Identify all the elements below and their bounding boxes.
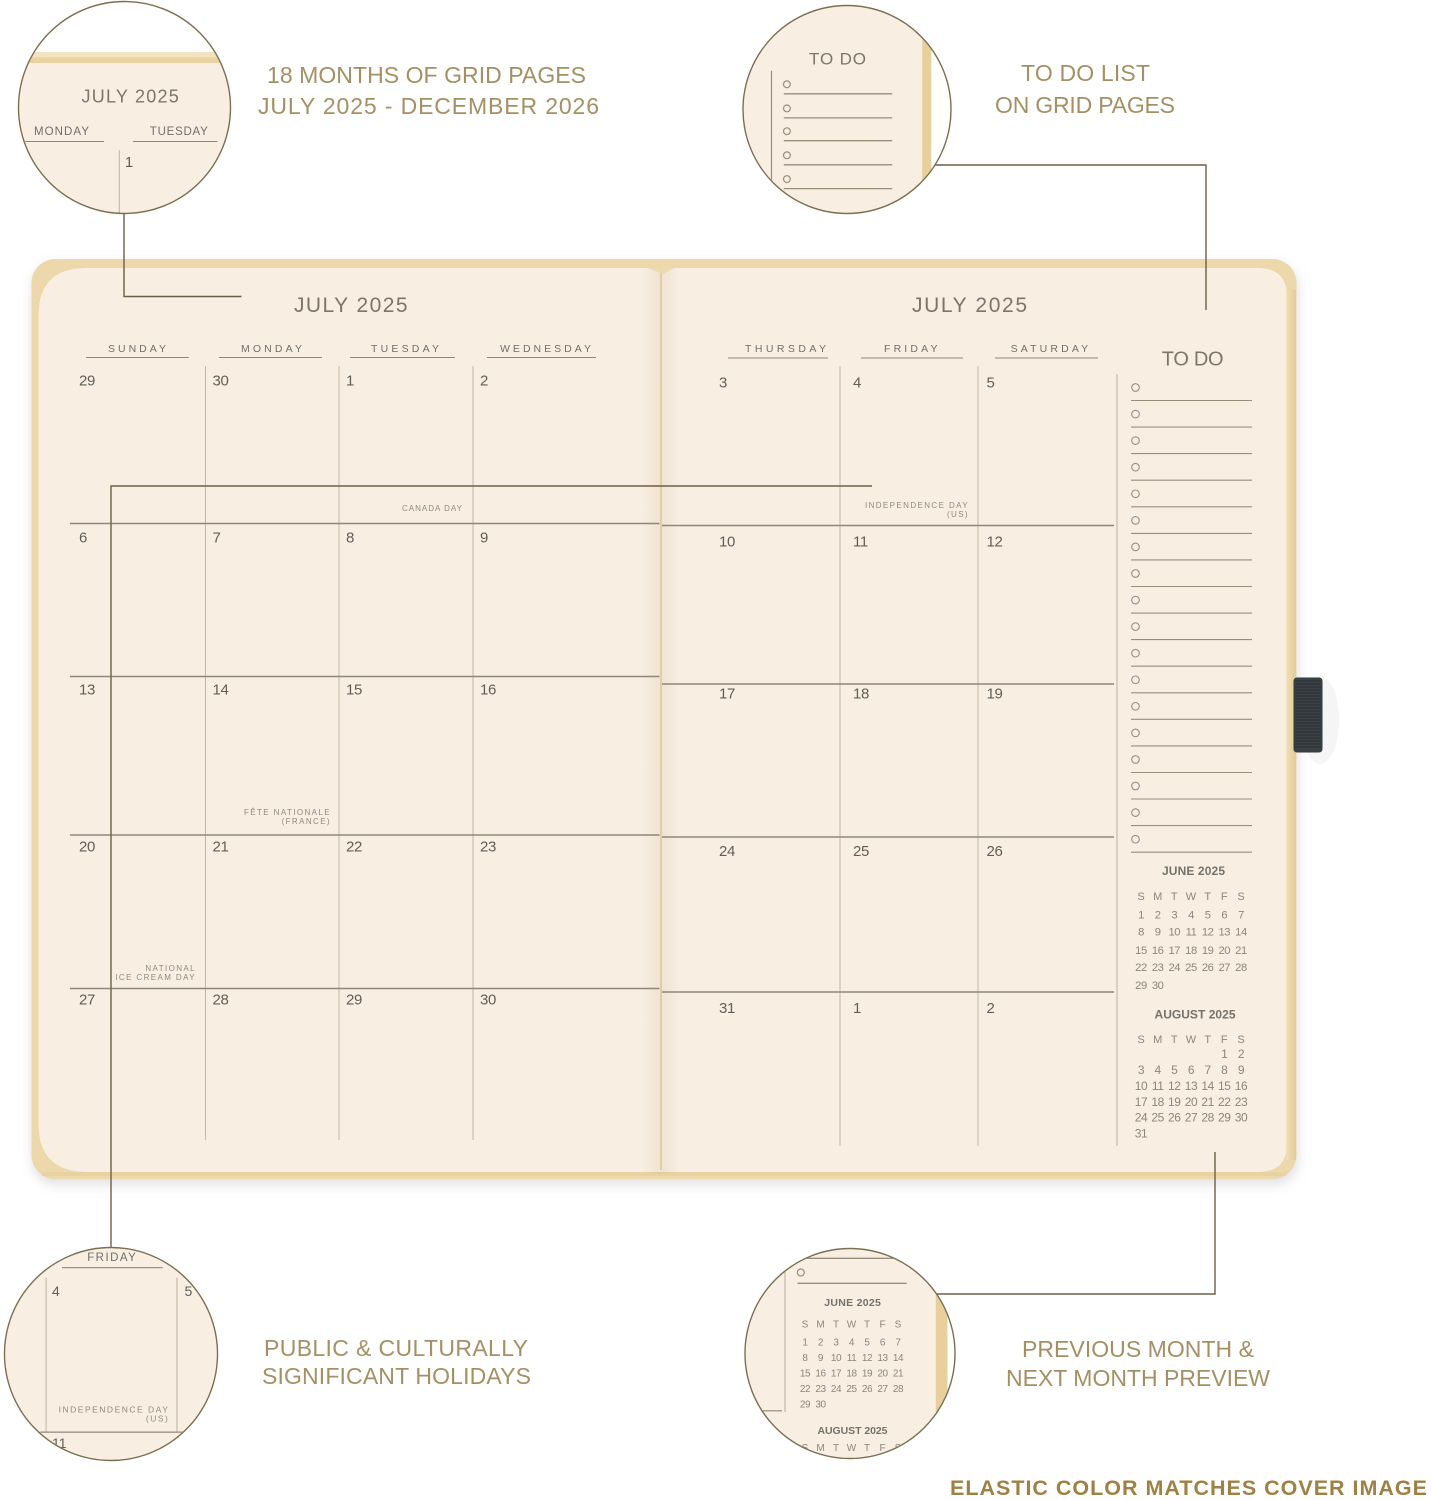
svg-text:23: 23	[1152, 962, 1164, 974]
svg-text:SATURDAY: SATURDAY	[1011, 343, 1089, 355]
svg-text:F: F	[1221, 891, 1228, 903]
svg-text:8: 8	[1138, 927, 1144, 939]
svg-text:29: 29	[800, 1400, 811, 1411]
svg-text:M: M	[816, 1320, 824, 1331]
svg-text:4: 4	[853, 375, 861, 392]
svg-text:W: W	[847, 1443, 857, 1454]
svg-text:24: 24	[831, 1384, 842, 1395]
svg-text:2: 2	[1155, 910, 1161, 922]
svg-text:23: 23	[1235, 1095, 1248, 1109]
svg-text:5: 5	[1171, 1063, 1178, 1077]
svg-text:14: 14	[213, 682, 229, 699]
svg-text:S: S	[1237, 891, 1244, 903]
svg-text:4: 4	[1188, 910, 1194, 922]
svg-text:9: 9	[1238, 1063, 1245, 1077]
svg-text:6: 6	[1188, 1063, 1195, 1077]
svg-text:14: 14	[1201, 1079, 1214, 1093]
svg-text:15: 15	[1135, 945, 1147, 957]
svg-text:(FRANCE): (FRANCE)	[282, 817, 331, 826]
svg-text:T: T	[833, 1320, 839, 1331]
svg-text:T: T	[864, 1443, 870, 1454]
svg-text:5: 5	[1205, 910, 1211, 922]
svg-text:S: S	[1237, 1034, 1244, 1046]
svg-text:22: 22	[800, 1384, 811, 1395]
svg-text:26: 26	[1202, 962, 1214, 974]
svg-text:11: 11	[847, 1353, 857, 1364]
svg-text:25: 25	[1185, 962, 1197, 974]
svg-text:17: 17	[1168, 945, 1180, 957]
svg-text:TO DO: TO DO	[1162, 349, 1224, 371]
svg-text:TO DO LIST: TO DO LIST	[1021, 60, 1150, 86]
svg-text:27: 27	[1185, 1111, 1198, 1125]
svg-text:16: 16	[1235, 1079, 1248, 1093]
svg-text:11: 11	[853, 534, 868, 551]
svg-text:18: 18	[853, 686, 869, 703]
svg-text:1: 1	[802, 1338, 808, 1349]
svg-text:27: 27	[877, 1384, 888, 1395]
svg-text:ELASTIC COLOR MATCHES COVER IM: ELASTIC COLOR MATCHES COVER IMAGE	[950, 1476, 1427, 1500]
svg-text:26: 26	[1168, 1111, 1181, 1125]
svg-text:W: W	[1186, 1034, 1197, 1046]
svg-text:S: S	[895, 1320, 902, 1331]
svg-text:5: 5	[864, 1338, 870, 1349]
svg-text:8: 8	[346, 530, 354, 547]
svg-text:S: S	[1137, 1034, 1144, 1046]
svg-text:4: 4	[849, 1338, 855, 1349]
svg-text:FÊTE NATIONALE: FÊTE NATIONALE	[244, 808, 331, 817]
svg-text:21: 21	[1235, 945, 1247, 957]
svg-text:17: 17	[719, 686, 735, 703]
svg-text:4: 4	[1155, 1063, 1162, 1077]
svg-text:JUNE 2025: JUNE 2025	[1162, 864, 1225, 878]
svg-text:26: 26	[987, 843, 1003, 860]
svg-text:SIGNIFICANT HOLIDAYS: SIGNIFICANT HOLIDAYS	[262, 1363, 531, 1389]
svg-text:24: 24	[719, 843, 735, 860]
svg-text:30: 30	[815, 1400, 826, 1411]
svg-text:29: 29	[1135, 980, 1147, 992]
svg-text:13: 13	[1185, 1079, 1198, 1093]
svg-text:28: 28	[1235, 962, 1247, 974]
svg-text:2: 2	[480, 373, 488, 390]
svg-text:3: 3	[719, 375, 727, 392]
svg-text:4: 4	[52, 1283, 60, 1299]
svg-text:10: 10	[1168, 927, 1180, 939]
svg-text:25: 25	[1151, 1111, 1164, 1125]
svg-text:30: 30	[213, 373, 229, 390]
svg-text:1: 1	[346, 373, 354, 390]
svg-text:T: T	[864, 1320, 870, 1331]
svg-text:24: 24	[1135, 1111, 1148, 1125]
svg-text:T: T	[1171, 891, 1178, 903]
svg-text:17: 17	[1135, 1095, 1148, 1109]
svg-text:TO DO: TO DO	[809, 50, 866, 69]
svg-text:20: 20	[877, 1369, 888, 1380]
svg-text:3: 3	[1138, 1063, 1145, 1077]
svg-text:W: W	[1186, 891, 1197, 903]
svg-text:F: F	[879, 1320, 885, 1331]
svg-text:JUNE 2025: JUNE 2025	[824, 1297, 881, 1309]
svg-text:ICE CREAM DAY: ICE CREAM DAY	[115, 973, 196, 982]
svg-text:25: 25	[846, 1384, 857, 1395]
svg-text:ON GRID PAGES: ON GRID PAGES	[995, 92, 1175, 118]
svg-text:M: M	[816, 1443, 824, 1454]
svg-text:M: M	[1153, 891, 1162, 903]
svg-text:PREVIOUS MONTH &: PREVIOUS MONTH &	[1022, 1336, 1254, 1362]
svg-text:11: 11	[1186, 927, 1197, 939]
svg-text:3: 3	[1171, 910, 1177, 922]
svg-text:10: 10	[1135, 1079, 1148, 1093]
svg-text:5: 5	[987, 375, 995, 392]
svg-text:1: 1	[1221, 1047, 1228, 1061]
svg-text:17: 17	[831, 1369, 842, 1380]
svg-text:2: 2	[987, 1000, 995, 1017]
svg-text:TUESDAY: TUESDAY	[150, 126, 208, 138]
svg-text:(US): (US)	[947, 510, 969, 519]
svg-text:26: 26	[862, 1384, 873, 1395]
svg-text:10: 10	[831, 1353, 842, 1364]
svg-text:AUGUST 2025: AUGUST 2025	[1155, 1008, 1236, 1022]
svg-text:S: S	[1137, 891, 1144, 903]
svg-text:14: 14	[893, 1353, 904, 1364]
svg-text:29: 29	[346, 992, 362, 1009]
svg-text:10: 10	[719, 534, 735, 551]
svg-text:MONDAY: MONDAY	[34, 126, 89, 138]
svg-text:23: 23	[480, 839, 496, 856]
svg-text:28: 28	[893, 1384, 904, 1395]
svg-text:30: 30	[480, 992, 496, 1009]
svg-text:JULY 2025: JULY 2025	[912, 294, 1027, 317]
svg-text:T: T	[1204, 891, 1211, 903]
svg-text:9: 9	[818, 1353, 824, 1364]
svg-text:2: 2	[818, 1338, 824, 1349]
svg-text:12: 12	[1168, 1079, 1181, 1093]
svg-text:30: 30	[1152, 980, 1164, 992]
svg-text:19: 19	[987, 686, 1003, 703]
svg-text:6: 6	[79, 530, 87, 547]
svg-text:7: 7	[1205, 1063, 1212, 1077]
svg-text:JULY 2025 - DECEMBER 2026: JULY 2025 - DECEMBER 2026	[258, 93, 599, 119]
svg-text:18: 18	[846, 1369, 857, 1380]
svg-text:11: 11	[1152, 1079, 1164, 1093]
svg-text:NATIONAL: NATIONAL	[145, 964, 196, 973]
svg-text:1: 1	[125, 154, 133, 171]
svg-text:2: 2	[1238, 1047, 1245, 1061]
svg-text:31: 31	[719, 1000, 735, 1017]
svg-text:30: 30	[1235, 1111, 1248, 1125]
svg-text:15: 15	[1218, 1079, 1231, 1093]
svg-text:7: 7	[213, 530, 221, 547]
svg-text:13: 13	[1218, 927, 1230, 939]
svg-text:19: 19	[1168, 1095, 1181, 1109]
svg-text:22: 22	[1135, 962, 1147, 974]
svg-text:18: 18	[1151, 1095, 1164, 1109]
svg-text:6: 6	[880, 1338, 886, 1349]
svg-text:16: 16	[1152, 945, 1164, 957]
svg-text:7: 7	[1238, 910, 1244, 922]
svg-text:21: 21	[893, 1369, 904, 1380]
svg-text:25: 25	[853, 843, 869, 860]
svg-text:18: 18	[1185, 945, 1197, 957]
svg-text:9: 9	[480, 530, 488, 547]
svg-text:TUESDAY: TUESDAY	[371, 343, 439, 355]
svg-text:16: 16	[480, 682, 496, 699]
svg-text:3: 3	[833, 1338, 839, 1349]
svg-text:21: 21	[213, 839, 229, 856]
svg-text:JULY 2025: JULY 2025	[294, 294, 408, 317]
svg-text:6: 6	[1221, 910, 1227, 922]
svg-text:19: 19	[862, 1369, 873, 1380]
svg-text:20: 20	[1185, 1095, 1198, 1109]
svg-text:5: 5	[185, 1283, 193, 1299]
svg-text:19: 19	[1202, 945, 1214, 957]
svg-text:27: 27	[79, 992, 95, 1009]
svg-text:24: 24	[1168, 962, 1180, 974]
svg-text:CANADA DAY: CANADA DAY	[402, 504, 463, 513]
svg-text:20: 20	[1218, 945, 1230, 957]
svg-text:28: 28	[1201, 1111, 1214, 1125]
svg-text:28: 28	[213, 992, 229, 1009]
svg-text:1: 1	[1138, 910, 1144, 922]
svg-text:AUGUST 2025: AUGUST 2025	[818, 1425, 888, 1437]
svg-text:22: 22	[346, 839, 362, 856]
svg-text:T: T	[1171, 1034, 1178, 1046]
svg-text:21: 21	[1201, 1095, 1214, 1109]
svg-text:13: 13	[79, 682, 95, 699]
svg-text:8: 8	[802, 1353, 808, 1364]
svg-text:S: S	[802, 1320, 809, 1331]
svg-text:NEXT MONTH PREVIEW: NEXT MONTH PREVIEW	[1006, 1365, 1270, 1391]
svg-text:12: 12	[862, 1353, 873, 1364]
svg-text:18 MONTHS OF GRID PAGES: 18 MONTHS OF GRID PAGES	[267, 62, 586, 88]
svg-text:(US): (US)	[146, 1414, 169, 1424]
svg-text:11: 11	[52, 1435, 67, 1451]
svg-text:W: W	[847, 1320, 857, 1331]
svg-text:9: 9	[1155, 927, 1161, 939]
svg-text:13: 13	[877, 1353, 888, 1364]
svg-text:12: 12	[1202, 927, 1214, 939]
svg-text:WEDNESDAY: WEDNESDAY	[500, 343, 591, 355]
svg-text:7: 7	[895, 1338, 901, 1349]
svg-text:20: 20	[79, 839, 95, 856]
svg-text:16: 16	[815, 1369, 826, 1380]
svg-text:PUBLIC & CULTURALLY: PUBLIC & CULTURALLY	[264, 1335, 528, 1361]
svg-text:22: 22	[1218, 1095, 1231, 1109]
svg-text:INDEPENDENCE DAY: INDEPENDENCE DAY	[865, 501, 969, 510]
svg-text:31: 31	[1135, 1127, 1148, 1141]
svg-text:T: T	[1204, 1034, 1211, 1046]
svg-text:12: 12	[987, 534, 1003, 551]
svg-text:23: 23	[815, 1384, 826, 1395]
svg-text:T: T	[833, 1443, 839, 1454]
svg-text:15: 15	[346, 682, 362, 699]
svg-text:8: 8	[1221, 1063, 1228, 1077]
svg-text:29: 29	[1218, 1111, 1231, 1125]
svg-text:29: 29	[79, 373, 95, 390]
svg-text:15: 15	[800, 1369, 811, 1380]
svg-text:JULY 2025: JULY 2025	[82, 87, 179, 107]
svg-text:27: 27	[1218, 962, 1230, 974]
svg-text:F: F	[1221, 1034, 1228, 1046]
svg-text:14: 14	[1235, 927, 1247, 939]
svg-text:M: M	[1153, 1034, 1162, 1046]
svg-text:1: 1	[853, 1000, 861, 1017]
